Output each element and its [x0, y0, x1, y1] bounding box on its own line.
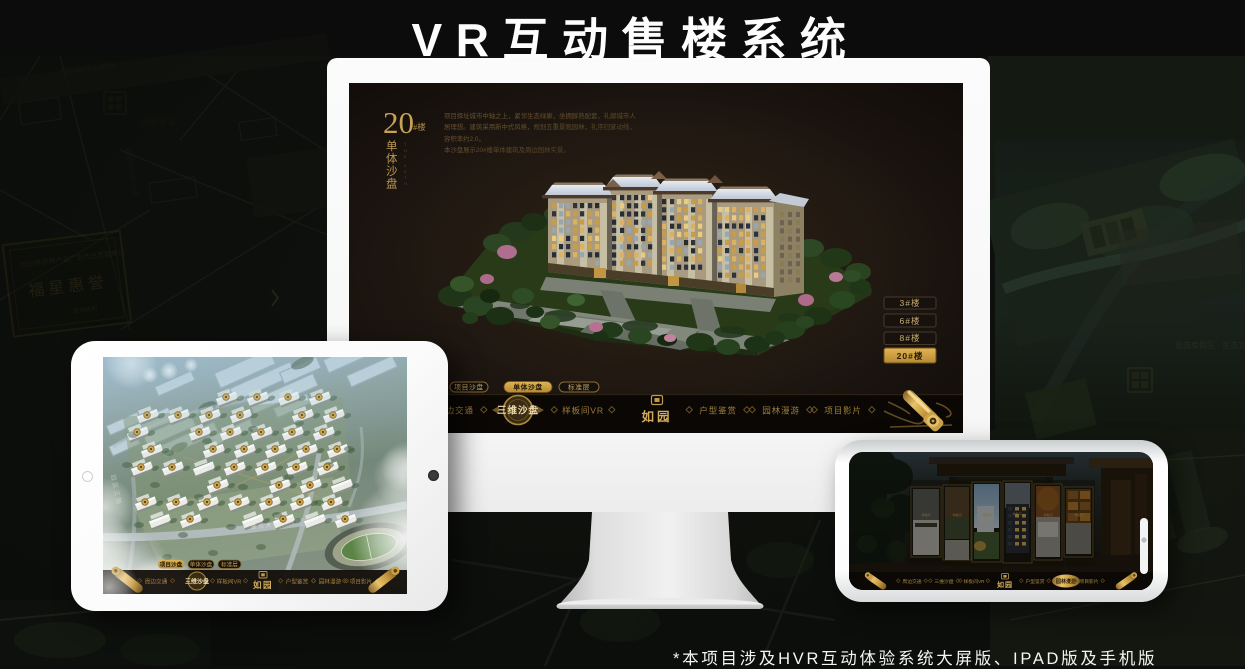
svg-text:2: 2: [404, 164, 406, 168]
svg-text:园林漫游: 园林漫游: [319, 578, 342, 586]
svg-text:3#楼: 3#楼: [900, 298, 921, 308]
svg-text:单体沙盘: 单体沙盘: [513, 383, 543, 392]
svg-text:项目影片: 项目影片: [350, 578, 373, 586]
svg-text:如园: 如园: [253, 580, 273, 590]
svg-text:旅游度假区 · 生态宜居: 旅游度假区 · 生态宜居: [1175, 340, 1245, 350]
svg-text:户型鉴赏: 户型鉴赏: [286, 578, 309, 586]
svg-text:周边交通: 周边交通: [145, 578, 168, 586]
svg-text:20#楼: 20#楼: [897, 351, 924, 361]
svg-text:项目影片: 项目影片: [1079, 578, 1098, 585]
svg-text:如园: 如园: [997, 580, 1013, 589]
svg-text:0: 0: [404, 170, 406, 174]
svg-text:园林漫游: 园林漫游: [762, 405, 800, 416]
svg-text:6#楼: 6#楼: [900, 316, 921, 326]
svg-text:H: H: [404, 149, 407, 153]
svg-text:周边交通: 周边交通: [902, 578, 921, 585]
svg-text:如园: 如园: [641, 409, 672, 424]
svg-text:标准层: 标准层: [221, 561, 238, 569]
svg-text:三维沙盘: 三维沙盘: [934, 578, 953, 585]
svg-text:标准层: 标准层: [568, 383, 590, 392]
svg-text:H: H: [404, 182, 407, 186]
svg-text:20: 20: [383, 105, 414, 140]
svg-text:园林漫游: 园林漫游: [1056, 578, 1076, 585]
svg-text:单体沙盘: 单体沙盘: [386, 140, 398, 191]
svg-text:三维沙盘: 三维沙盘: [185, 578, 209, 586]
svg-text:项目沙盘: 项目沙盘: [454, 383, 484, 392]
svg-text:样板间VR: 样板间VR: [217, 578, 242, 586]
svg-text:户型鉴赏: 户型鉴赏: [1025, 578, 1044, 585]
svg-text:#楼: #楼: [413, 122, 426, 132]
svg-text:8#楼: 8#楼: [900, 333, 921, 343]
svg-text:样板间VR: 样板间VR: [963, 578, 985, 585]
svg-text:户型鉴赏: 户型鉴赏: [699, 405, 737, 416]
svg-text:样板间VR: 样板间VR: [562, 405, 604, 416]
svg-text:福星惠誉: 福星惠誉: [140, 116, 176, 127]
svg-text:项目沙盘: 项目沙盘: [160, 561, 183, 569]
svg-text:单体沙盘: 单体沙盘: [190, 561, 213, 569]
svg-text:项目影片: 项目影片: [824, 405, 862, 416]
svg-text:三维沙盘: 三维沙盘: [497, 405, 539, 417]
